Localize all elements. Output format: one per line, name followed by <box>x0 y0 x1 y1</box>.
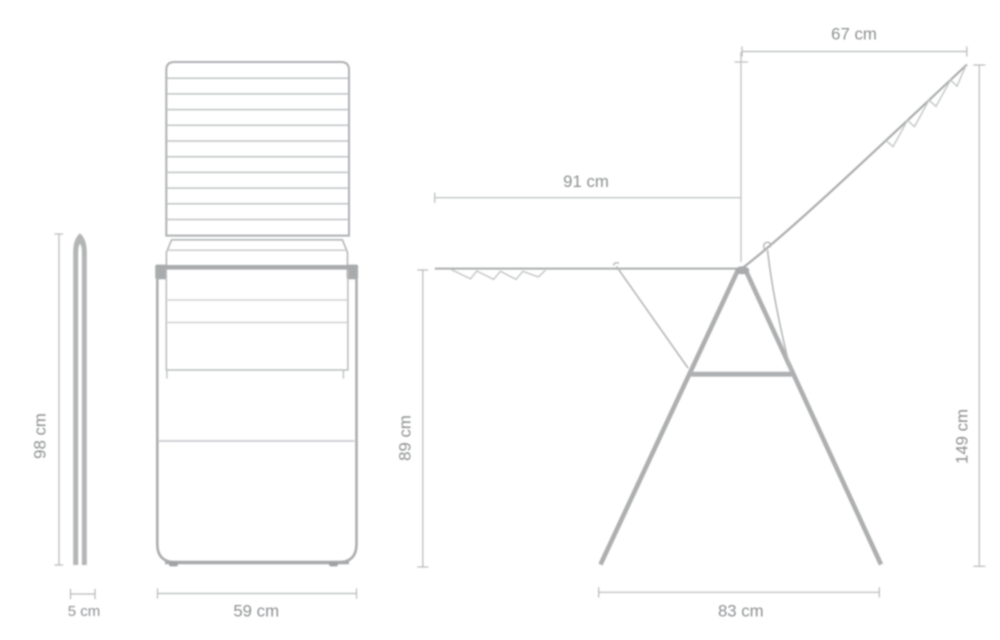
svg-text:98 cm: 98 cm <box>31 413 50 459</box>
svg-text:83 cm: 83 cm <box>718 602 764 621</box>
svg-text:67 cm: 67 cm <box>831 25 877 44</box>
svg-text:91 cm: 91 cm <box>563 172 609 191</box>
svg-text:89 cm: 89 cm <box>396 415 415 461</box>
svg-text:5 cm: 5 cm <box>68 603 101 620</box>
svg-text:59 cm: 59 cm <box>233 602 279 621</box>
svg-text:149 cm: 149 cm <box>953 409 972 464</box>
